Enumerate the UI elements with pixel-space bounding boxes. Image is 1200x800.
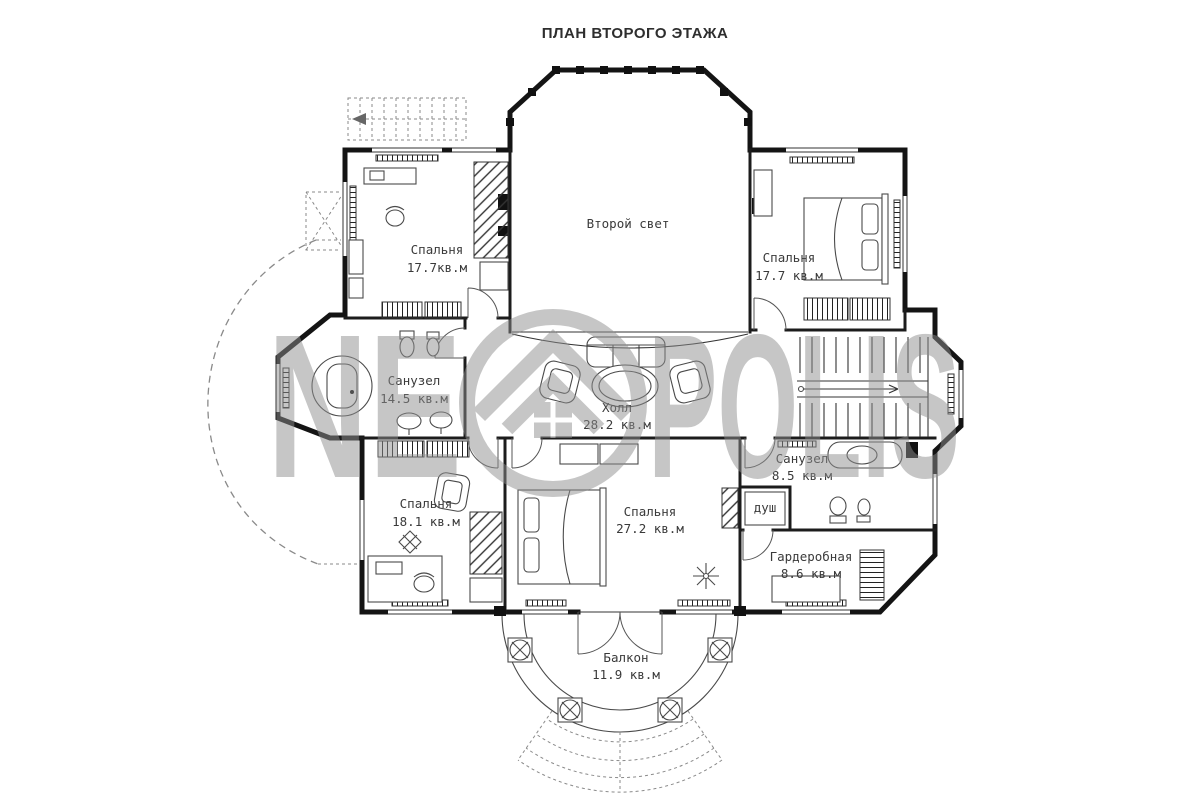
bedroom-top-left-furniture xyxy=(349,168,416,298)
dashed-context xyxy=(208,98,466,564)
bidet xyxy=(427,332,439,356)
room-label-area: 28.2 кв.м xyxy=(583,417,651,432)
room-label-area: 11.9 кв.м xyxy=(592,667,660,682)
balcony-steps xyxy=(518,711,722,792)
sink xyxy=(397,413,421,435)
room-label-name: Спальня xyxy=(763,250,816,265)
window xyxy=(901,196,909,272)
dresser xyxy=(754,170,772,216)
pillow xyxy=(524,538,539,572)
page-title: ПЛАН ВТОРОГО ЭТАЖА xyxy=(542,25,729,42)
room-label-name: Второй свет xyxy=(587,216,670,231)
french-door-right xyxy=(620,612,662,654)
stair-arrow xyxy=(804,385,898,393)
sofa xyxy=(587,337,665,367)
window xyxy=(452,146,496,154)
bedroom-bottom-left-furniture xyxy=(368,471,471,602)
room-label-area: 14.5 кв.м xyxy=(380,391,448,406)
bedroom-top-right-furniture xyxy=(754,170,888,284)
armchair xyxy=(668,359,712,405)
window xyxy=(522,608,568,616)
chair xyxy=(386,210,404,226)
window xyxy=(786,146,858,154)
room-label-area: 18.1 кв.м xyxy=(392,514,460,529)
plant xyxy=(693,563,719,589)
room-label-name: Санузел xyxy=(388,373,441,388)
room-label-name: Спальня xyxy=(411,242,464,257)
room-label-name: душ xyxy=(754,500,777,515)
bedroom-bottom-center-furniture xyxy=(518,488,719,589)
floor-plan-svg: Спальня 17.7кв.м Второй свет Спальня 17.… xyxy=(0,0,1200,800)
stair-direction-arrow xyxy=(352,113,366,125)
bidet xyxy=(857,499,870,522)
room-label-name: Гардеробная xyxy=(770,549,853,564)
room-label-name: Балкон xyxy=(603,650,648,665)
window xyxy=(358,500,366,560)
room-label-name: Холл xyxy=(602,400,632,415)
balcony-column xyxy=(558,698,582,722)
dresser xyxy=(349,240,363,274)
pillow xyxy=(524,498,539,532)
window xyxy=(957,370,965,418)
bathtub xyxy=(312,356,372,416)
balcony-column xyxy=(708,638,732,662)
window xyxy=(274,364,282,412)
window xyxy=(372,146,442,154)
room-label-area: 17.7кв.м xyxy=(407,260,468,275)
toilet xyxy=(830,497,846,523)
pillow xyxy=(862,204,878,234)
staircase xyxy=(797,337,928,437)
chair xyxy=(414,576,434,592)
wardrobe-hatch xyxy=(474,162,508,258)
window xyxy=(782,608,850,616)
french-door-left xyxy=(578,612,620,654)
toilet xyxy=(400,331,414,357)
armchair xyxy=(538,359,582,405)
window xyxy=(931,474,939,524)
room-label-name: Спальня xyxy=(624,504,677,519)
window xyxy=(388,608,452,616)
room-label-area: 17.7 кв.м xyxy=(755,268,823,283)
room-label-area: 8.5 кв.м xyxy=(772,468,833,483)
balcony-structure xyxy=(494,606,746,792)
room-label-area: 8.6 кв.м xyxy=(781,566,842,581)
balcony-column xyxy=(508,638,532,662)
floor-plan-page: Спальня 17.7кв.м Второй свет Спальня 17.… xyxy=(0,0,1200,800)
pillow xyxy=(862,240,878,270)
desk xyxy=(364,168,416,184)
room-label-name: Спальня xyxy=(400,496,453,511)
room-label-area: 27.2 кв.м xyxy=(616,521,684,536)
room-label-name: Санузел xyxy=(776,451,829,466)
watermark-text-right: POLIS xyxy=(648,292,960,521)
sink xyxy=(430,412,452,434)
window xyxy=(676,608,732,616)
window xyxy=(341,182,349,256)
balcony-column xyxy=(658,698,682,722)
bay-window-piers xyxy=(506,66,752,126)
